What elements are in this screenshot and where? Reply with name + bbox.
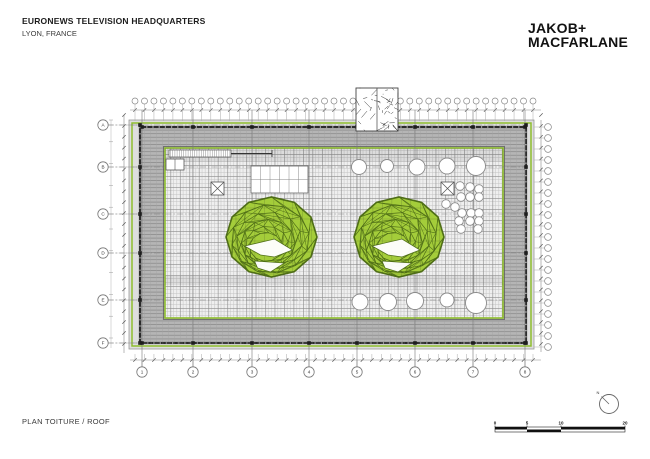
skylight-circle [381,160,394,173]
skylight-circle [380,294,397,311]
svg-text:3: 3 [251,370,254,375]
drawing-sheet: EURONEWS TELEVISION HEADQUARTERS LYON, F… [0,0,650,459]
roof-plan-drawing: ABCDEF12345678051020N [0,0,650,459]
scale-bar: 051020 [494,421,628,433]
svg-text:5: 5 [526,421,529,426]
svg-text:0: 0 [494,421,497,426]
svg-text:1: 1 [141,370,144,375]
north-arrow: N [597,390,619,414]
svg-text:B: B [101,165,104,170]
equipment-block [356,88,398,131]
svg-text:5: 5 [356,370,359,375]
svg-text:E: E [101,298,104,303]
skylight-circle [467,157,486,176]
svg-text:7: 7 [472,370,475,375]
skylight-circle [352,160,367,175]
svg-text:N: N [597,390,600,395]
skylight-circle [409,159,425,175]
skylight-circle [466,293,487,314]
svg-text:2: 2 [192,370,195,375]
skylight-circle [407,293,424,310]
svg-text:4: 4 [308,370,311,375]
skylight-circle [352,294,368,310]
svg-text:8: 8 [524,370,527,375]
svg-text:F: F [102,341,105,346]
svg-text:10: 10 [558,421,564,426]
column-grid-bubbles: 12345678 [137,360,530,377]
skylight-circle [439,158,455,174]
skylight-circle [440,293,454,307]
svg-text:20: 20 [622,421,628,426]
svg-text:6: 6 [414,370,417,375]
